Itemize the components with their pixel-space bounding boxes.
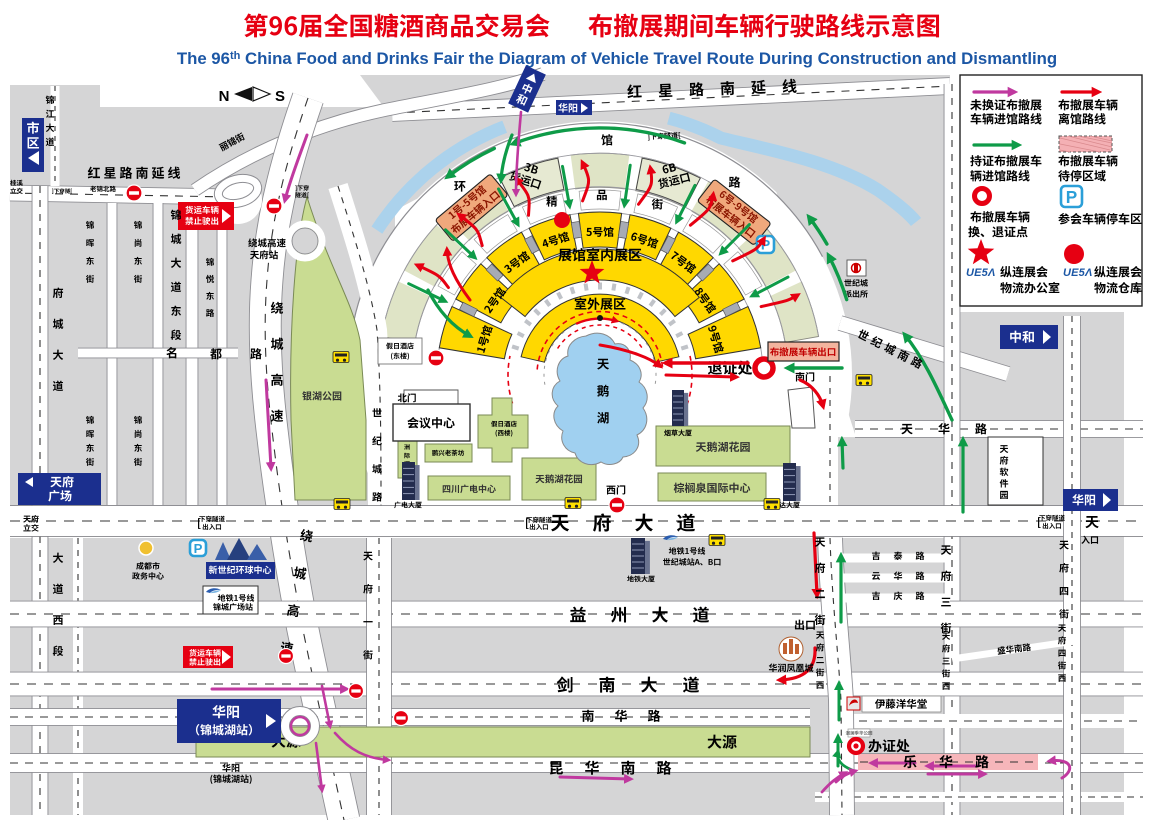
svg-text:S: S [275,88,285,105]
svg-text:The 96th China Food and Drinks: The 96th China Food and Drinks Fair the … [177,49,1057,68]
svg-text:UE5Λ: UE5Λ [966,267,996,279]
svg-text:UE5Λ: UE5Λ [1063,267,1093,279]
svg-text:P: P [1066,187,1077,207]
svg-text:P: P [194,541,203,556]
svg-text:N: N [219,88,230,105]
